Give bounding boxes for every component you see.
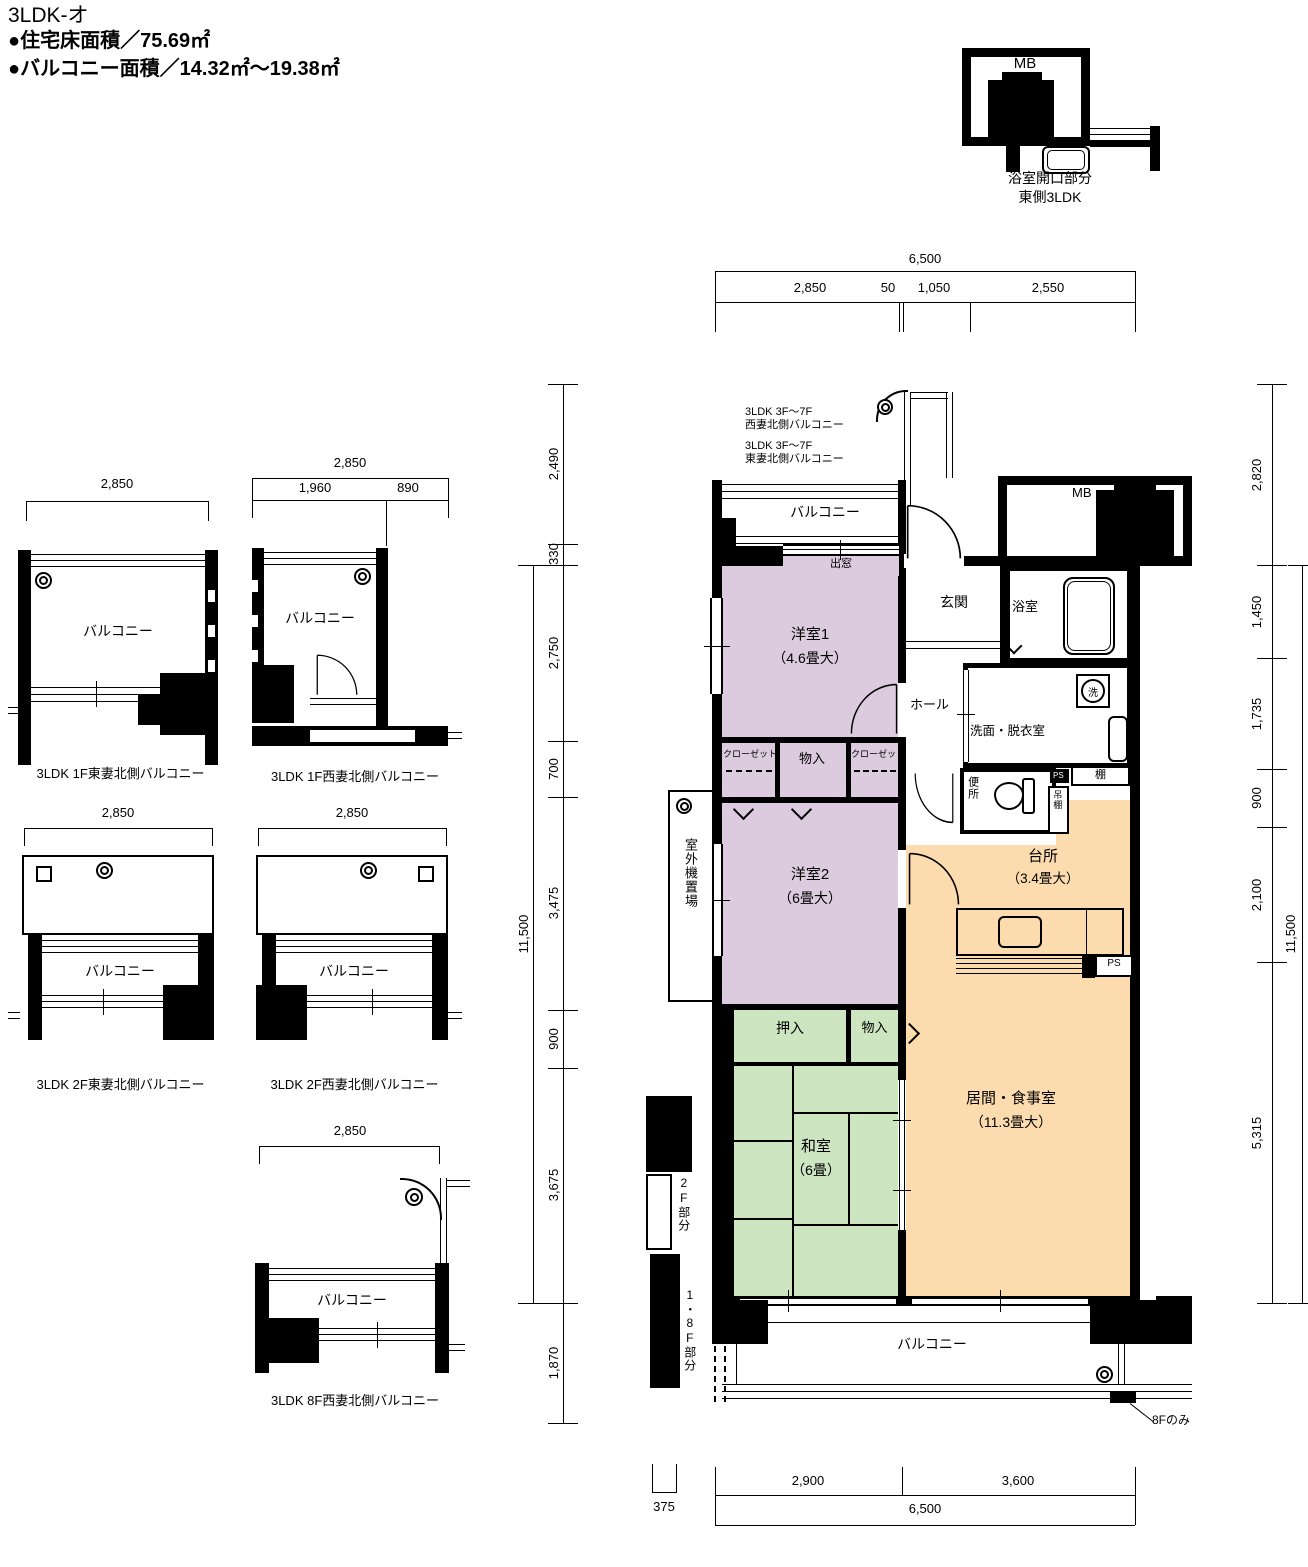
balcony-block [712, 518, 736, 566]
diagram-balcony-label: バルコニー [264, 610, 376, 626]
line [310, 704, 376, 705]
wall [1081, 48, 1090, 146]
line [904, 392, 905, 506]
section-box [646, 1174, 672, 1250]
kitchen-sink [998, 916, 1042, 948]
washitsu-label: 和室 [734, 1138, 898, 1155]
dim-line [715, 271, 1135, 272]
drain-icon [676, 798, 692, 814]
demado-label: 出窓 [806, 558, 876, 571]
dim-tick [970, 302, 971, 332]
floorplan-page: 3LDK-オ ●住宅床面積／75.69㎡ ●バルコニー面積／14.32㎡～19.… [0, 0, 1308, 1567]
balcony-diagram-1f-west: 2,850 1,960 890 バルコニー 3LDK 1F西妻北側バルコニー [240, 440, 470, 790]
rail-line [722, 498, 898, 499]
dim-left-seg: 2,750 [545, 611, 561, 695]
closet-left-label: クローゼット [723, 749, 775, 759]
balcony-block [736, 546, 784, 558]
dim-line [26, 501, 208, 502]
mb-duct-block [1096, 490, 1174, 562]
dim-tick [903, 302, 904, 332]
dim-tick [448, 478, 449, 518]
outdoor-unit-label: 室外機置場 [682, 838, 697, 908]
window-tick [1000, 1290, 1001, 1312]
tana-label: 棚 [1071, 769, 1130, 782]
line [440, 1178, 441, 1263]
wall [255, 1263, 269, 1373]
ps-top-label: PS [1053, 771, 1064, 780]
dim-bottom-seg: 3,600 [968, 1474, 1068, 1489]
diagram-dim: 2,850 [300, 1124, 400, 1139]
diagram-dim: 2,850 [68, 806, 168, 821]
yoshitsu2-label: 洋室2 [722, 866, 898, 883]
bath-opening-inset: MB 浴室開口部分 東側3LDK [950, 40, 1200, 215]
wall [18, 550, 31, 765]
drain-icon [877, 399, 893, 415]
dim-top-seg: 50 [868, 281, 908, 296]
tatami-line [734, 1218, 792, 1220]
dim-tick [439, 1146, 440, 1164]
dim-tick [715, 1467, 716, 1525]
closet-dash [726, 770, 772, 772]
balcony-area-line: ●バルコニー面積／14.32㎡～19.38㎡ [8, 58, 340, 81]
dashed-wall [714, 1306, 716, 1402]
ps-kitchen-block [1082, 954, 1095, 978]
mb-wall [998, 476, 1007, 566]
toilet-label: 便所 [966, 776, 979, 800]
dim-tick [1135, 271, 1136, 332]
floor18-label: 1・8F部分 [682, 1288, 696, 1372]
floor2-label: 2F部分 [676, 1176, 690, 1232]
dim-line [715, 302, 1135, 303]
genkan-step-line [906, 641, 1004, 642]
dashed-wall [724, 1306, 726, 1402]
door-opening [898, 850, 906, 908]
line [446, 1178, 447, 1263]
dim-tick [548, 384, 578, 385]
dim-line [563, 384, 564, 1423]
wall [435, 1263, 449, 1373]
monoire-bottom-label: 物入 [851, 1021, 898, 1036]
diagram-subdim: 890 [378, 481, 438, 496]
meter-box-label: MB [990, 55, 1060, 72]
dim-tick [902, 1467, 903, 1495]
dim-tick [212, 828, 213, 846]
window-line [783, 549, 899, 550]
window-tick [893, 1190, 911, 1191]
diagram-subdim: 1,960 [265, 481, 365, 496]
strip-gap [310, 730, 415, 742]
dim-tick [1257, 1303, 1287, 1304]
dim-right-seg: 900 [1248, 756, 1264, 840]
inset-caption: 東側3LDK [950, 189, 1150, 205]
counter-hatch [956, 973, 1082, 974]
dim-line [24, 828, 212, 829]
dim-tick [1135, 1467, 1136, 1525]
dim-right-seg: 2,100 [1248, 853, 1264, 937]
line [910, 392, 948, 393]
wall-notch [252, 615, 258, 627]
diagram-dim: 2,850 [300, 456, 400, 471]
diagram-caption: 3LDK 2F西妻北側バルコニー [242, 1078, 467, 1093]
washroom-counter [1108, 716, 1128, 762]
yoshitsu2-door-arc [908, 852, 960, 906]
drain-icon [35, 572, 52, 589]
dim-tick [252, 478, 253, 518]
dim-tick [1288, 1303, 1308, 1304]
bath-label: 浴室 [1012, 600, 1038, 615]
dim-line [1302, 565, 1303, 1303]
line [8, 1012, 20, 1013]
hall-label: ホール [910, 698, 949, 713]
rail-line [264, 552, 376, 553]
note-line: 西妻北側バルコニー [745, 419, 844, 431]
sliding-door-line [963, 670, 964, 762]
yoshitsu1-size: （4.6畳大） [722, 650, 898, 666]
wall [1006, 146, 1020, 172]
note-line: 東妻北側バルコニー [745, 453, 844, 465]
dim-line [652, 1492, 677, 1493]
dim-line [259, 1146, 439, 1147]
dim-left-seg: 2,490 [545, 422, 561, 506]
rail-line [42, 940, 198, 941]
living-label: 居間・食事室 [906, 1090, 1116, 1107]
wall [1150, 126, 1160, 171]
wall-washitsu-top [734, 1062, 904, 1066]
dim-right-seg: 5,315 [1248, 1091, 1264, 1175]
dim-bottom-small: 375 [634, 1500, 694, 1515]
dim-top-seg: 1,050 [909, 281, 959, 296]
mb-wall [998, 476, 1192, 485]
line [952, 392, 953, 478]
line [8, 713, 18, 714]
sliding-door-line [899, 1080, 900, 1230]
closet-right-label: クローゼット [851, 749, 897, 759]
dim-top-seg: 2,550 [998, 281, 1098, 296]
diagram-balcony-label: バルコニー [269, 1292, 435, 1308]
tsuridana-label: 吊棚 [1052, 790, 1062, 810]
dim-tick [24, 828, 25, 846]
dim-line [258, 828, 446, 829]
wall-notch [208, 660, 215, 672]
dim-left-total: 11,500 [515, 892, 531, 976]
rail-line [722, 484, 898, 485]
balcony-block [163, 985, 214, 1040]
sliding-door-line [904, 1080, 905, 1230]
diagram-balcony-label: バルコニー [31, 623, 205, 639]
dim-tick [652, 1464, 653, 1492]
window-tick [377, 1322, 378, 1348]
note-line: 3LDK 3F～7F [745, 406, 812, 418]
rail-line [307, 995, 432, 996]
floor-area-line: ●住宅床面積／75.69㎡ [8, 30, 210, 53]
counter-divider [1086, 908, 1087, 956]
toilet-door-arc [914, 772, 954, 824]
wall [432, 935, 448, 1040]
line [448, 1018, 462, 1019]
washitsu-size: （6畳） [734, 1162, 898, 1178]
drain-icon [360, 862, 377, 879]
corner-square [36, 866, 52, 882]
rail-line [276, 952, 432, 953]
balcony-block [138, 695, 160, 725]
rail-line [31, 566, 205, 567]
line [8, 707, 18, 708]
dim-left-seg: 3,475 [545, 861, 561, 945]
dim-right-seg: 1,735 [1248, 672, 1264, 756]
line [310, 698, 376, 699]
wall [376, 548, 388, 738]
room-washitsu-fill [734, 1066, 898, 1296]
door-opening [898, 683, 906, 737]
balcony-block [269, 1318, 319, 1363]
counter-hatch [956, 958, 1082, 959]
dim-top-seg: 2,850 [760, 281, 860, 296]
dim-right-seg: 2,820 [1248, 433, 1264, 517]
note-3f7f-west: 3LDK 3F～7F 西妻北側バルコニー [745, 406, 844, 431]
dim-line [252, 500, 448, 501]
rail-line [722, 1384, 1192, 1385]
line [446, 1186, 470, 1187]
bay-window [783, 544, 899, 556]
sliding-door-line [968, 670, 969, 762]
window-tick [103, 989, 104, 1015]
duct-block [988, 80, 1054, 137]
kitchen-size: （3.4畳大） [960, 871, 1126, 887]
balcony-diagram-2f-west: 2,850 バルコニー 3LDK 2F西妻北側バルコニー [242, 800, 467, 1100]
inset-caption: 浴室開口部分 [950, 170, 1150, 186]
balcony-south-label: バルコニー [722, 1336, 1142, 1352]
dim-line [252, 478, 448, 479]
line [910, 398, 948, 399]
dim-line [715, 1525, 1135, 1526]
rail-line [269, 1280, 435, 1281]
diagram-balcony-label: バルコニー [42, 963, 198, 979]
tatami-line [792, 1066, 794, 1296]
dim-tick [899, 302, 900, 332]
rail-line [264, 564, 376, 565]
dim-right-seg: 1,450 [1248, 570, 1264, 654]
window-tick [704, 646, 730, 647]
wall-notch [208, 625, 215, 637]
window-tick [788, 1290, 789, 1312]
rail-line [42, 946, 198, 947]
monoire-top-label: 物入 [780, 752, 844, 767]
section-block [646, 1096, 692, 1172]
dim-left-seg: 900 [545, 997, 561, 1081]
balcony-diagram-1f-east: 2,850 バルコニー 3LDK 1F東妻北側バルコニー [8, 455, 233, 790]
yoshitsu1-label: 洋室1 [722, 626, 898, 643]
line [446, 1180, 470, 1181]
dim-bottom-total: 6,500 [875, 1502, 975, 1517]
rail-line [31, 560, 205, 561]
dim-tick [1257, 384, 1287, 385]
dim-left-seg: 700 [545, 727, 561, 811]
toilet-tank [1022, 778, 1035, 814]
tatami-line [792, 1112, 898, 1114]
window-tick [957, 714, 975, 715]
diagram-dim: 2,850 [67, 477, 167, 492]
line [946, 392, 947, 478]
oshiire-label: 押入 [734, 1020, 846, 1036]
wall [1090, 140, 1152, 147]
line [449, 1344, 465, 1345]
diagram-balcony-label: バルコニー [276, 963, 432, 979]
dim-tick [446, 828, 447, 846]
dim-tick [548, 1423, 578, 1424]
only8f-label: 8Fのみ [1152, 1414, 1190, 1428]
wall-west-thick [712, 1004, 734, 1306]
rail-line [722, 491, 898, 492]
line [1090, 128, 1158, 129]
rail-line [307, 1007, 432, 1008]
dim-line [715, 1495, 1135, 1496]
diagram-caption: 3LDK 1F西妻北側バルコニー [240, 770, 470, 785]
wall-closet-top [712, 737, 906, 743]
drain-icon [96, 862, 113, 879]
only8f-mark [1110, 1392, 1136, 1403]
page-title: 3LDK-オ [8, 4, 89, 28]
rail-line [276, 946, 432, 947]
line [448, 732, 462, 733]
diagram-caption: 3LDK 8F西妻北側バルコニー [235, 1394, 475, 1409]
dim-tick [208, 501, 209, 521]
window-tick [96, 681, 97, 707]
balcony-block [256, 985, 307, 1040]
dim-top-total: 6,500 [875, 252, 975, 267]
yoshitsu2-size: （6畳大） [722, 890, 898, 906]
window-tick [840, 540, 841, 560]
rail-line [722, 536, 898, 537]
dim-tick [1257, 565, 1287, 566]
note-3f7f-east: 3LDK 3F～7F 東妻北側バルコニー [745, 440, 844, 465]
dim-tick [548, 1303, 578, 1304]
line [448, 1012, 462, 1013]
corner-square [418, 866, 434, 882]
dim-tick [518, 565, 548, 566]
dim-left-seg: 330 [545, 512, 561, 596]
wall [962, 137, 1090, 146]
washer-label: 洗 [1088, 684, 1098, 699]
wall [962, 48, 971, 146]
dim-tick [26, 501, 27, 521]
rail-line [42, 952, 198, 953]
wall-oshiire-top [712, 1004, 906, 1010]
rail-line [269, 1274, 435, 1275]
drain-icon [405, 1188, 423, 1206]
washer-drum: 洗 [1081, 679, 1105, 703]
kitchen-label: 台所 [960, 848, 1126, 865]
counter-hatch [956, 963, 1082, 964]
dim-tick [715, 271, 716, 332]
mb-wall [1183, 476, 1192, 566]
wall-notch [252, 650, 258, 662]
rail-line [307, 1001, 432, 1002]
dim-tick [386, 500, 387, 546]
washroom-label: 洗面・脱衣室 [970, 724, 1045, 738]
balcony-block [160, 673, 205, 735]
dim-left-seg: 3,675 [545, 1143, 561, 1227]
dim-left-seg: 1,870 [545, 1321, 561, 1405]
wall [205, 550, 218, 765]
entrance-door-arc [906, 504, 962, 560]
balcony-block [252, 665, 294, 723]
rail-line [276, 940, 432, 941]
diagram-door-arc [316, 654, 358, 696]
living-size: （11.3畳大） [906, 1114, 1116, 1130]
balcony-diagram-2f-east: 2,850 バルコニー 3LDK 2F東妻北側バルコニー [8, 800, 233, 1100]
line [910, 392, 911, 506]
wall-notch [252, 580, 258, 592]
drain-icon [354, 568, 371, 585]
balcony-block [1156, 1296, 1192, 1344]
diagram-caption: 3LDK 1F東妻北側バルコニー [8, 767, 233, 782]
rail-line [264, 558, 376, 559]
wall-notch [208, 590, 215, 602]
mb-label: MB [1072, 486, 1092, 501]
dim-tick [676, 1464, 677, 1492]
dim-line [533, 565, 534, 1303]
section-block [650, 1254, 680, 1388]
line [448, 738, 462, 739]
tatami-line [792, 1224, 898, 1226]
closet-dash [854, 770, 896, 772]
balcony-diagram-8f-west: 2,850 バルコニー 3LDK 8F西妻北側バルコニー [235, 1118, 475, 1423]
balcony-north-label: バルコニー [752, 504, 898, 520]
yoshitsu1-door-arc [850, 683, 898, 735]
dim-tick [259, 1146, 260, 1164]
drain-icon [1096, 1366, 1113, 1383]
leader-line [1130, 1403, 1154, 1422]
bathtub-inner [1047, 150, 1085, 170]
diagram-caption: 3LDK 2F東妻北側バルコニー [8, 1078, 233, 1093]
genkan-step-line [906, 648, 1004, 649]
genkan-label: 玄関 [906, 594, 1002, 610]
dim-line [1272, 384, 1273, 1303]
diagram-dim: 2,850 [302, 806, 402, 821]
line [1090, 134, 1158, 135]
note-line: 3LDK 3F～7F [745, 440, 812, 452]
dim-tick [258, 828, 259, 846]
dim-tick [518, 1303, 548, 1304]
wall [28, 935, 42, 1040]
rail-line [269, 1268, 435, 1269]
line [449, 1350, 465, 1351]
line [8, 1018, 20, 1019]
oshiire-divider [846, 1010, 851, 1062]
window-tick [372, 989, 373, 1015]
dim-bottom-seg: 2,900 [758, 1474, 858, 1489]
dim-tick [1288, 565, 1308, 566]
bathtub-inner [1067, 581, 1111, 651]
dim-tick [1257, 658, 1287, 659]
dim-right-total: 11,500 [1282, 892, 1298, 976]
rail-line [31, 554, 205, 555]
ps-kitchen-label: PS [1095, 958, 1133, 970]
counter-hatch [956, 968, 1082, 969]
